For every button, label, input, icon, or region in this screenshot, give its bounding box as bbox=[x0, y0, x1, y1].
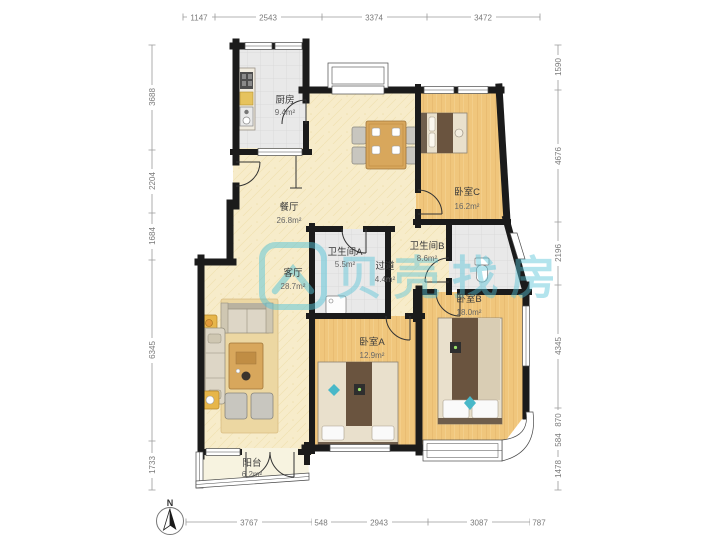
bathA-label: 卫生间A bbox=[328, 246, 364, 258]
bedB-label: 卧室B bbox=[456, 293, 481, 305]
kitchen-label: 厨房 bbox=[275, 94, 294, 106]
dim-left-3: 1684 bbox=[148, 227, 157, 245]
bedA-area: 12.9m² bbox=[360, 351, 385, 360]
dim-top-1: 1147 bbox=[190, 14, 208, 23]
armchair bbox=[251, 393, 273, 419]
dining-table bbox=[366, 121, 406, 169]
living-label: 客厅 bbox=[283, 267, 303, 279]
bedA-window bbox=[330, 445, 390, 452]
hallway-label: 过道 bbox=[375, 260, 395, 272]
living-area: 28.7m² bbox=[281, 282, 306, 291]
balcony-label: 阳台 bbox=[242, 457, 261, 469]
bedA-label: 卧室A bbox=[359, 336, 385, 348]
hallway-area: 4.4m² bbox=[375, 275, 396, 284]
dining-label: 餐厅 bbox=[279, 201, 299, 213]
kitchen-counter bbox=[238, 68, 255, 130]
dim-top-2: 2543 bbox=[259, 14, 277, 23]
bedC-floor bbox=[416, 90, 507, 220]
north-label: N bbox=[167, 498, 174, 508]
dim-left: 3688 2204 1684 6345 1733 bbox=[147, 45, 157, 490]
compass: N bbox=[157, 498, 184, 535]
dim-right-2: 4676 bbox=[554, 147, 563, 165]
dining-area: 26.8m² bbox=[277, 216, 302, 225]
dim-bottom-1: 3767 bbox=[240, 519, 258, 528]
dim-left-2: 2204 bbox=[148, 172, 157, 190]
dim-bottom-5: 787 bbox=[532, 519, 546, 528]
bedC-label: 卧室C bbox=[454, 186, 480, 198]
bedB-area: 18.0m² bbox=[457, 308, 482, 317]
dim-bottom-3: 2943 bbox=[370, 519, 388, 528]
cutting-board bbox=[240, 92, 253, 105]
bedC-area: 16.2m² bbox=[455, 202, 480, 211]
bedC-bed bbox=[419, 113, 467, 153]
dim-top-4: 3472 bbox=[474, 14, 492, 23]
watermark-text: 贝壳找房 bbox=[336, 252, 568, 304]
balcony-area: 6.2m² bbox=[242, 470, 263, 479]
dim-left-1: 3688 bbox=[148, 88, 157, 106]
bathB-label: 卫生间B bbox=[410, 240, 445, 252]
floor-plan-canvas: 贝壳找房 厨房 9.4m² 餐厅 26.8m² 客厅 28.7m² 卫生间A 5… bbox=[0, 0, 720, 540]
kitchen-area: 9.4m² bbox=[275, 108, 296, 117]
coffee-table bbox=[229, 343, 263, 389]
bedB-bed bbox=[438, 318, 502, 424]
dim-top-3: 3374 bbox=[365, 14, 383, 23]
dim-bottom-2: 548 bbox=[314, 519, 328, 528]
dim-left-4: 6345 bbox=[148, 341, 157, 359]
dim-right-7: 1478 bbox=[554, 460, 563, 478]
dim-right-5: 870 bbox=[554, 413, 563, 427]
dim-top: 1147 2543 3374 3472 bbox=[183, 12, 540, 23]
dim-bottom-4: 3087 bbox=[470, 519, 488, 528]
bedA-bed bbox=[318, 362, 398, 448]
bathA-area: 5.5m² bbox=[335, 260, 356, 269]
armchair bbox=[225, 393, 247, 419]
bedB-side-window bbox=[523, 306, 530, 366]
dim-right-6: 584 bbox=[554, 433, 563, 447]
bathB-area: 8.6m² bbox=[417, 254, 438, 263]
dim-left-5: 1733 bbox=[148, 456, 157, 474]
dim-right-3: 2196 bbox=[554, 244, 563, 262]
dim-right-1: 1590 bbox=[554, 58, 563, 76]
dim-bottom: 3767 548 2943 3087 787 bbox=[186, 517, 549, 528]
dim-right-4: 4345 bbox=[554, 337, 563, 355]
dining-bay-window bbox=[328, 63, 388, 94]
floor-plan-page: 贝壳找房 厨房 9.4m² 餐厅 26.8m² 客厅 28.7m² 卫生间A 5… bbox=[0, 0, 720, 540]
